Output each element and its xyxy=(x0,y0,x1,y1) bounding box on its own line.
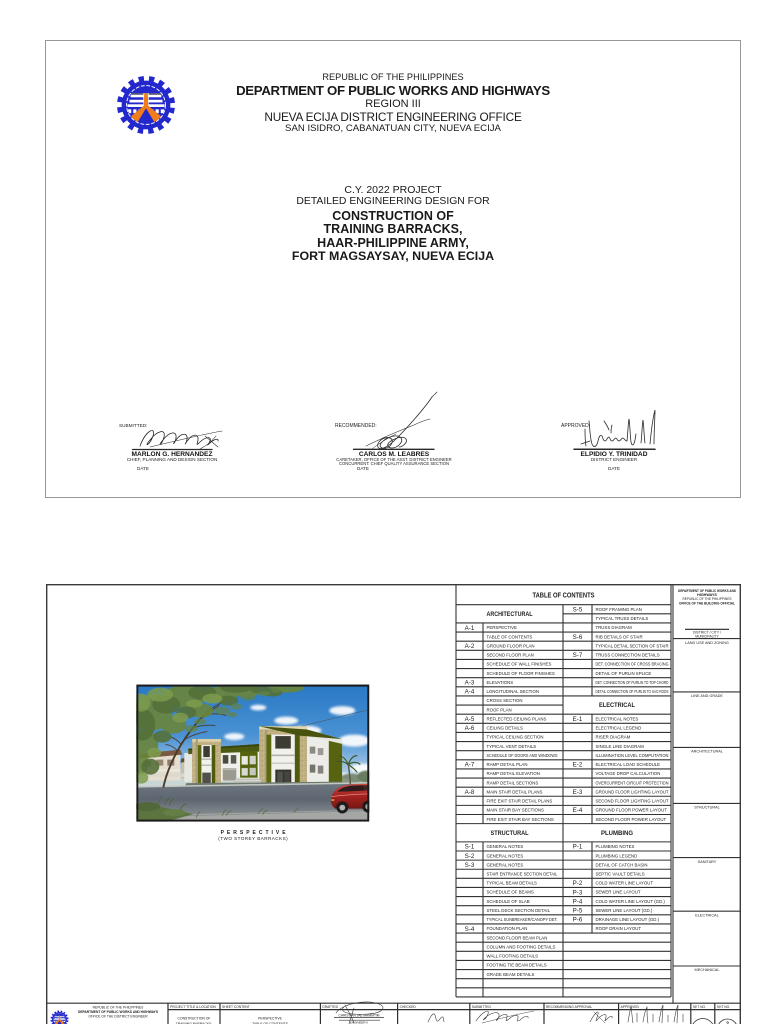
svg-text:FOUNDATION PLAN: FOUNDATION PLAN xyxy=(487,926,528,931)
svg-text:GROUND FLOOR POWER LAYOUT: GROUND FLOOR POWER LAYOUT xyxy=(596,808,668,813)
svg-text:VOLTAGE DROP CALCULATION: VOLTAGE DROP CALCULATION xyxy=(596,771,661,776)
svg-text:A-7: A-7 xyxy=(465,762,475,769)
svg-text:RISER DIAGRAM: RISER DIAGRAM xyxy=(596,735,631,740)
svg-text:CHECKED: CHECKED xyxy=(400,1005,417,1009)
svg-text:ROOF PLAN: ROOF PLAN xyxy=(487,707,512,712)
svg-text:ELECTRICAL: ELECTRICAL xyxy=(599,702,635,709)
svg-text:CROSS SECTION: CROSS SECTION xyxy=(487,698,523,703)
svg-text:SCHEDULE OF WALL FINISHES: SCHEDULE OF WALL FINISHES xyxy=(487,662,552,667)
svg-text:COLD WATER LINE LAYOUT: COLD WATER LINE LAYOUT xyxy=(596,881,654,886)
svg-text:E-2: E-2 xyxy=(573,762,583,769)
svg-text:DETAIL CONNECTION OF PURLIN TO: DETAIL CONNECTION OF PURLIN TO SAG RODS xyxy=(596,689,669,694)
svg-text:TRUSS CONNECTION DETAILS: TRUSS CONNECTION DETAILS xyxy=(596,653,660,658)
svg-text:ILLUMINATION LEVEL COMPUTATION: ILLUMINATION LEVEL COMPUTATION xyxy=(596,753,669,758)
svg-text:LAND USE AND ZONING: LAND USE AND ZONING xyxy=(685,641,729,645)
svg-text:RAMP DETAIL PLAN: RAMP DETAIL PLAN xyxy=(487,762,528,767)
svg-text:ELECTRICAL: ELECTRICAL xyxy=(695,913,718,917)
svg-text:SEWER LINE LAYOUT: SEWER LINE LAYOUT xyxy=(596,890,641,895)
svg-text:ELEVATIONS: ELEVATIONS xyxy=(487,680,514,685)
svg-text:ROOF FRAMING PLAN: ROOF FRAMING PLAN xyxy=(596,607,642,612)
svg-text:SECOND FLOOR LIGHTING LAYOUT: SECOND FLOOR LIGHTING LAYOUT xyxy=(596,799,669,804)
svg-text:SEWER LINE LAYOUT (GD.): SEWER LINE LAYOUT (GD.) xyxy=(596,908,653,913)
svg-text:SECOND FLOOR POWER LAYOUT: SECOND FLOOR POWER LAYOUT xyxy=(596,817,667,822)
svg-text:PERSPECTIVE: PERSPECTIVE xyxy=(258,1017,282,1021)
svg-text:SCHEDULE OF SLAB: SCHEDULE OF SLAB xyxy=(487,899,530,904)
svg-text:SEPTIC VAULT DETAILS: SEPTIC VAULT DETAILS xyxy=(596,872,645,877)
svg-text:PLUMBING LEGEND: PLUMBING LEGEND xyxy=(596,853,638,858)
svg-text:FIRE EXIT STAIR DETAIL PLANS: FIRE EXIT STAIR DETAIL PLANS xyxy=(487,799,553,804)
svg-text:GRADE BEAM DETAILS: GRADE BEAM DETAILS xyxy=(487,972,535,977)
svg-text:S-1: S-1 xyxy=(465,844,475,851)
svg-text:DET. CONNECTION OF PURLIN TO T: DET. CONNECTION OF PURLIN TO TOP CHORD xyxy=(596,680,669,685)
svg-text:SHEET CONTENT: SHEET CONTENT xyxy=(222,1005,250,1009)
svg-text:P-4: P-4 xyxy=(573,899,583,906)
svg-text:ELECTRICAL LEGEND: ELECTRICAL LEGEND xyxy=(596,726,642,731)
svg-text:TYPICAL CEILING SECTION: TYPICAL CEILING SECTION xyxy=(487,735,544,740)
svg-text:ELECTRICAL NOTES: ELECTRICAL NOTES xyxy=(596,716,639,721)
svg-text:PLUMBING NOTES: PLUMBING NOTES xyxy=(596,844,635,849)
svg-text:A-4: A-4 xyxy=(465,689,475,696)
svg-text:DETAIL OF CATCH BASIN: DETAIL OF CATCH BASIN xyxy=(596,862,648,867)
svg-text:A-2: A-2 xyxy=(465,643,475,650)
svg-text:GROUND FLOOR PLAN: GROUND FLOOR PLAN xyxy=(487,643,535,648)
svg-text:STRUCTURAL: STRUCTURAL xyxy=(491,830,529,837)
svg-text:S-4: S-4 xyxy=(465,926,475,933)
svg-text:P-3: P-3 xyxy=(573,889,583,896)
svg-text:ARCHITECTURAL: ARCHITECTURAL xyxy=(691,750,723,754)
svg-text:REFLECTED CEILING PLANS: REFLECTED CEILING PLANS xyxy=(487,716,547,721)
svg-text:MAIN STAIR DETAIL PLANS: MAIN STAIR DETAIL PLANS xyxy=(487,789,543,794)
svg-text:(TWO STOREY BARRACKS): (TWO STOREY BARRACKS) xyxy=(218,836,288,841)
svg-text:LINE AND GRADE: LINE AND GRADE xyxy=(691,694,723,698)
svg-text:SINGLE LINE DIAGRAM: SINGLE LINE DIAGRAM xyxy=(596,744,645,749)
svg-text:TABLE OF CONTENTS: TABLE OF CONTENTS xyxy=(533,591,595,600)
svg-text:PLUMBING: PLUMBING xyxy=(601,830,633,837)
svg-text:TYPICAL VENT DETAILS: TYPICAL VENT DETAILS xyxy=(487,744,537,749)
svg-text:S-6: S-6 xyxy=(573,634,583,641)
svg-text:RIB DETAILS OF STAIR: RIB DETAILS OF STAIR xyxy=(596,634,643,639)
svg-text:DETAIL OF PURLIN SPLICE: DETAIL OF PURLIN SPLICE xyxy=(596,671,652,676)
svg-text:A-8: A-8 xyxy=(465,789,475,796)
svg-text:RECOMMENDING APPROVAL: RECOMMENDING APPROVAL xyxy=(546,1005,592,1009)
svg-text:DET. CONNECTION OF CROSS BRACI: DET. CONNECTION OF CROSS BRACING xyxy=(596,662,670,667)
svg-text:A-3: A-3 xyxy=(465,680,475,687)
svg-text:GROUND FLOOR LIGHTING LAYOUT: GROUND FLOOR LIGHTING LAYOUT xyxy=(596,789,669,794)
svg-text:PERSPECTIVE: PERSPECTIVE xyxy=(221,830,289,836)
svg-text:PERSPECTIVE: PERSPECTIVE xyxy=(487,625,518,630)
svg-text:OFFICE OF THE DISTRICT ENGINEE: OFFICE OF THE DISTRICT ENGINEER xyxy=(88,1015,148,1019)
svg-text:STAIR ENTRANCE SECTION DETAIL: STAIR ENTRANCE SECTION DETAIL xyxy=(487,872,559,877)
svg-text:TYPICAL DETAIL SECTION OF STAI: TYPICAL DETAIL SECTION OF STAIR xyxy=(596,643,669,648)
svg-text:SCHEDULE OF FLOOR FINISHES: SCHEDULE OF FLOOR FINISHES xyxy=(487,671,555,676)
svg-text:CEILING DETAILS: CEILING DETAILS xyxy=(487,726,523,731)
svg-text:ELECTRICAL LOAD SCHEDULE: ELECTRICAL LOAD SCHEDULE xyxy=(596,762,661,767)
svg-text:MECHANICAL: MECHANICAL xyxy=(695,968,720,972)
svg-text:OVERCURRENT CIRCUIT PROTECTION: OVERCURRENT CIRCUIT PROTECTION xyxy=(596,780,669,785)
svg-text:DRAFTED: DRAFTED xyxy=(322,1005,338,1009)
svg-text:S-5: S-5 xyxy=(573,607,583,614)
svg-text:REPUBLIC OF THE PHILIPPINES: REPUBLIC OF THE PHILIPPINES xyxy=(682,597,731,601)
svg-text:ARCHITECTURAL: ARCHITECTURAL xyxy=(487,611,533,618)
svg-text:SCHEDULE OF BEAMS: SCHEDULE OF BEAMS xyxy=(487,890,534,895)
svg-text:SET NO.: SET NO. xyxy=(693,1005,706,1009)
svg-text:FIRE EXIT STAIR BAY SECTIONS: FIRE EXIT STAIR BAY SECTIONS xyxy=(487,817,554,822)
svg-text:RAMP DETAIL ELEVATION: RAMP DETAIL ELEVATION xyxy=(487,771,540,776)
svg-text:SANITARY: SANITARY xyxy=(698,860,717,864)
svg-text:DRAINAGE LINE LAYOUT (GD.): DRAINAGE LINE LAYOUT (GD.) xyxy=(596,917,660,922)
svg-text:P-2: P-2 xyxy=(573,880,583,887)
svg-text:FOOTING TIE BEAM DETAILS: FOOTING TIE BEAM DETAILS xyxy=(487,963,547,968)
svg-text:SUBMITTED: SUBMITTED xyxy=(472,1005,492,1009)
svg-text:CONSTRUCTION OF: CONSTRUCTION OF xyxy=(178,1017,211,1021)
svg-text:S-2: S-2 xyxy=(465,853,475,860)
svg-text:GENERAL NOTES: GENERAL NOTES xyxy=(487,853,524,858)
svg-text:SECOND FLOOR BEAM PLAN: SECOND FLOOR BEAM PLAN xyxy=(487,935,548,940)
svg-text:REPUBLIC OF THE PHILIPPINES: REPUBLIC OF THE PHILIPPINES xyxy=(93,1006,144,1010)
svg-text:SECOND FLOOR PLAN: SECOND FLOOR PLAN xyxy=(487,653,534,658)
svg-text:RAMP DETAIL SECTIONS: RAMP DETAIL SECTIONS xyxy=(487,780,539,785)
svg-text:A-6: A-6 xyxy=(465,725,475,732)
svg-text:TRUSS DIAGRAM: TRUSS DIAGRAM xyxy=(596,625,633,630)
svg-text:ROOF DRAIN LAYOUT: ROOF DRAIN LAYOUT xyxy=(596,926,642,931)
svg-text:E-3: E-3 xyxy=(573,789,583,796)
svg-text:COLD WATER LINE LAYOUT (GD.): COLD WATER LINE LAYOUT (GD.) xyxy=(596,899,666,904)
svg-text:E-4: E-4 xyxy=(573,807,583,814)
svg-text:APPROVED: APPROVED xyxy=(621,1005,640,1009)
svg-text:GENERAL NOTES: GENERAL NOTES xyxy=(487,844,524,849)
svg-text:S-3: S-3 xyxy=(465,862,475,869)
svg-text:STRUCTURAL: STRUCTURAL xyxy=(694,806,720,810)
svg-text:P-1: P-1 xyxy=(573,844,583,851)
svg-text:P-6: P-6 xyxy=(573,917,583,924)
svg-text:MAIN STAIR BAY SECTIONS: MAIN STAIR BAY SECTIONS xyxy=(487,808,545,813)
svg-text:SHT NO.: SHT NO. xyxy=(717,1005,730,1009)
svg-text:TYPICAL SUNBREAKER/CANOPY DET.: TYPICAL SUNBREAKER/CANOPY DET. xyxy=(487,917,558,922)
svg-text:A-1: A-1 xyxy=(465,625,475,632)
svg-text:TYPICAL TRUSS DETAILS: TYPICAL TRUSS DETAILS xyxy=(596,616,649,621)
svg-text:TYPICAL BEAM DETAILS: TYPICAL BEAM DETAILS xyxy=(487,881,538,886)
svg-text:LONGITUDINAL SECTION: LONGITUDINAL SECTION xyxy=(487,689,539,694)
svg-text:OFFICE OF THE BUILDING OFFICIA: OFFICE OF THE BUILDING OFFICIAL xyxy=(679,601,736,605)
svg-text:GENERAL NOTES: GENERAL NOTES xyxy=(487,862,524,867)
svg-text:A-5: A-5 xyxy=(465,716,475,723)
svg-text:SCHEDULE OF DOORS AND WINDOWS: SCHEDULE OF DOORS AND WINDOWS xyxy=(487,753,558,758)
svg-text:P-5: P-5 xyxy=(573,908,583,915)
svg-text:WALL FOOTING DETAILS: WALL FOOTING DETAILS xyxy=(487,954,539,959)
svg-text:MUNICIPALITY: MUNICIPALITY xyxy=(695,635,719,639)
svg-text:ENGINEER II: ENGINEER II xyxy=(350,1021,368,1024)
svg-text:TABLE OF CONTENTS: TABLE OF CONTENTS xyxy=(487,634,533,639)
svg-text:STEEL DECK SECTION DETAIL: STEEL DECK SECTION DETAIL xyxy=(487,908,551,913)
svg-text:PROJECT TITLE & LOCATION: PROJECT TITLE & LOCATION xyxy=(170,1005,216,1009)
svg-text:DEPARTMENT OF PUBLIC WORKS AND: DEPARTMENT OF PUBLIC WORKS AND HIGHWAYS xyxy=(78,1010,159,1014)
svg-text:S-7: S-7 xyxy=(573,652,583,659)
svg-text:COLUMN AND FOOTING DETAILS: COLUMN AND FOOTING DETAILS xyxy=(487,945,556,950)
svg-text:E-1: E-1 xyxy=(573,716,583,723)
